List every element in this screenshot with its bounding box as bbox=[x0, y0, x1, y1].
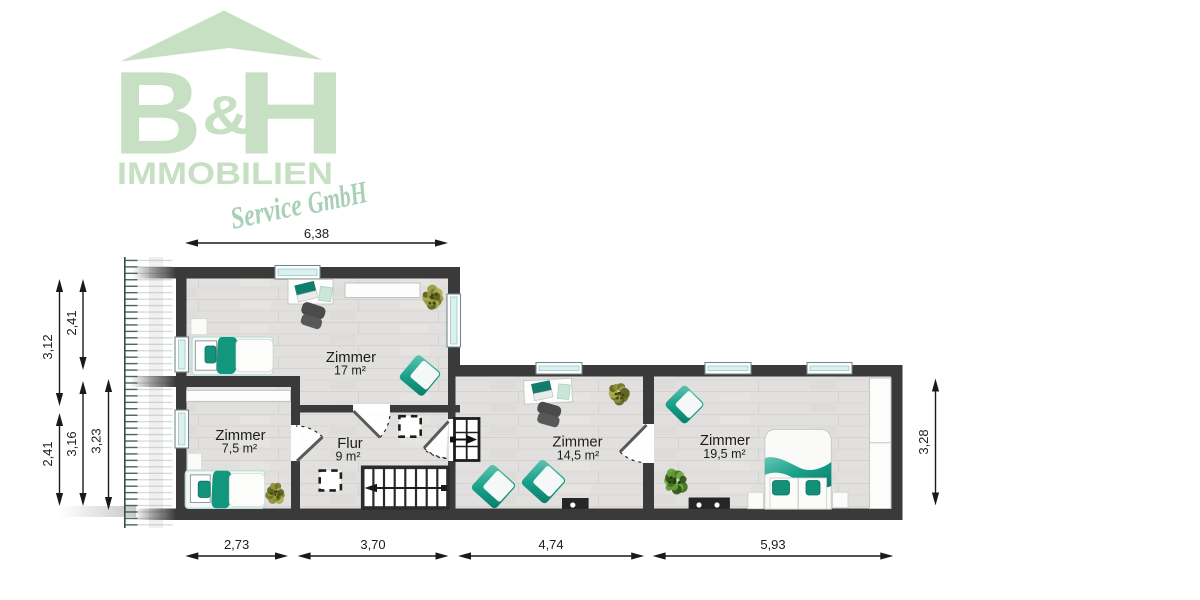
svg-text:19,5 m²: 19,5 m² bbox=[703, 447, 745, 461]
svg-text:2,41: 2,41 bbox=[64, 310, 79, 335]
svg-text:9 m²: 9 m² bbox=[336, 450, 361, 464]
svg-text:4,74: 4,74 bbox=[538, 537, 563, 552]
svg-text:3,28: 3,28 bbox=[916, 429, 931, 454]
svg-text:14,5 m²: 14,5 m² bbox=[557, 449, 599, 463]
svg-text:2,73: 2,73 bbox=[224, 537, 249, 552]
svg-text:3,23: 3,23 bbox=[89, 428, 104, 453]
svg-text:2,41: 2,41 bbox=[40, 441, 55, 466]
svg-text:3,70: 3,70 bbox=[360, 537, 385, 552]
svg-text:3,12: 3,12 bbox=[40, 334, 55, 359]
svg-text:17 m²: 17 m² bbox=[334, 364, 366, 378]
svg-text:3,16: 3,16 bbox=[64, 431, 79, 456]
svg-text:IMMOBILIEN: IMMOBILIEN bbox=[117, 155, 333, 191]
svg-text:5,93: 5,93 bbox=[760, 537, 785, 552]
svg-text:7,5 m²: 7,5 m² bbox=[222, 442, 257, 456]
svg-text:6,38: 6,38 bbox=[304, 226, 329, 241]
